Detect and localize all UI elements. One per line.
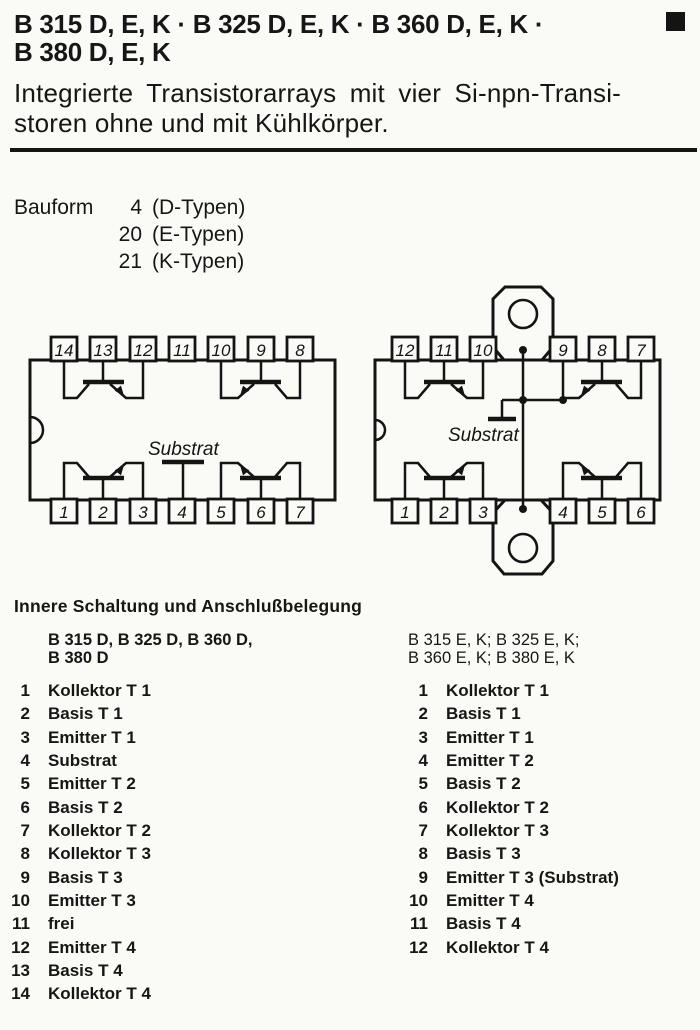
- pin-number: 11: [173, 341, 191, 360]
- pinout-left-header: B 315 D, B 325 D, B 360 D, B 380 D: [48, 632, 253, 667]
- pin-number-cell: 4: [0, 749, 30, 772]
- pin-label-cell: Basis T 3: [48, 868, 123, 887]
- transistor-symbol-t4: [405, 361, 483, 398]
- page-title-line2: B 380 D, E, K: [14, 37, 171, 68]
- bauform-row: 20(E-Typen): [100, 221, 245, 248]
- pin-number-cell: 6: [0, 796, 30, 819]
- pin-row: 12Emitter T 4: [0, 936, 151, 959]
- pin-number-cell: 5: [0, 772, 30, 795]
- pin-label-cell: Basis T 1: [48, 704, 123, 723]
- pin-number: 9: [256, 341, 266, 360]
- pin-label-cell: Basis T 4: [446, 914, 521, 933]
- transistor-symbol-t3: [563, 361, 641, 398]
- bauform-label: Bauform: [14, 196, 93, 220]
- pin-label-cell: Emitter T 3: [48, 891, 136, 910]
- pin-row: 2Basis T 1: [0, 702, 151, 725]
- subtitle-line2: storen ohne und mit Kühlkörper.: [14, 108, 389, 139]
- pin-number: 8: [295, 341, 305, 360]
- pin-row: 9Emitter T 3 (Substrat): [398, 866, 619, 889]
- pin-number: 13: [94, 341, 113, 360]
- pinout-right-header-line1: B 315 E, K; B 325 E, K;: [408, 632, 580, 650]
- pin-row: 10Emitter T 4: [398, 889, 619, 912]
- pinout-right-header-line2: B 360 E, K; B 380 E, K: [408, 650, 580, 668]
- pin-label-cell: Basis T 4: [48, 961, 123, 980]
- pin-number-cell: 4: [398, 749, 428, 772]
- pin-row: 5Emitter T 2: [0, 772, 151, 795]
- pin-row: 3Emitter T 1: [0, 726, 151, 749]
- pin-number-cell: 8: [398, 842, 428, 865]
- pin-label-cell: Emitter T 2: [48, 774, 136, 793]
- pin-number: 10: [474, 341, 493, 360]
- pin-label-cell: Emitter T 1: [446, 728, 534, 747]
- pin-row: 2Basis T 1: [398, 702, 619, 725]
- transistor-symbol-t2: [563, 463, 641, 500]
- pin-label-cell: Kollektor T 4: [48, 984, 151, 1003]
- pin-row: 11frei: [0, 912, 151, 935]
- pin-label-cell: Kollektor T 3: [446, 821, 549, 840]
- pin-label-cell: Basis T 1: [446, 704, 521, 723]
- pinout-heading: Innere Schaltung und Anschlußbelegung: [14, 596, 362, 617]
- pin-row: 1Kollektor T 1: [0, 679, 151, 702]
- transistor-symbol-t3: [221, 361, 300, 398]
- pin-label-cell: Kollektor T 4: [446, 938, 549, 957]
- pin-number-cell: 2: [398, 702, 428, 725]
- pin-number: 9: [558, 341, 568, 360]
- transistor-symbol-t1: [64, 463, 143, 500]
- dip12k-package: 12 11 10 9 8 7 1 2 3 4 5 6: [375, 287, 660, 574]
- pin-row: 6Basis T 2: [0, 796, 151, 819]
- pin-number: 5: [597, 503, 607, 522]
- pin-number: 4: [558, 503, 567, 522]
- pin-row: 14Kollektor T 4: [0, 982, 151, 1005]
- pin-number-cell: 1: [0, 679, 30, 702]
- pin-number: 3: [138, 503, 148, 522]
- pin-label-cell: frei: [48, 914, 74, 933]
- pin-number: 12: [134, 341, 153, 360]
- pin-number: 1: [400, 503, 409, 522]
- pinout-left-header-line1: B 315 D, B 325 D, B 360 D,: [48, 632, 253, 650]
- pin-row: 5Basis T 2: [398, 772, 619, 795]
- pin-number: 1: [59, 503, 68, 522]
- pin-number: 6: [636, 503, 646, 522]
- pin-row: 4Emitter T 2: [398, 749, 619, 772]
- pin-number: 14: [55, 341, 74, 360]
- transistor-symbol-t4: [64, 361, 143, 398]
- pin-label-cell: Basis T 2: [446, 774, 521, 793]
- pin-number-cell: 12: [0, 936, 30, 959]
- bauform-number: 4: [100, 194, 142, 221]
- pin-label-cell: Basis T 2: [48, 798, 123, 817]
- bauform-number: 20: [100, 221, 142, 248]
- pin-number-cell: 12: [398, 936, 428, 959]
- datasheet-page: B 315 D, E, K · B 325 D, E, K · B 360 D,…: [0, 0, 700, 1030]
- bauform-rows: 4(D-Typen) 20(E-Typen) 21(K-Typen): [100, 194, 245, 275]
- pin-number: 5: [216, 503, 226, 522]
- pin-number-cell: 7: [0, 819, 30, 842]
- pin-list-left: 1Kollektor T 1 2Basis T 1 3Emitter T 1 4…: [0, 679, 151, 1006]
- pin-number-cell: 11: [398, 912, 428, 935]
- dip14-package: 14 13 12 11 10 9 8 1 2 3 4 5 6 7: [30, 337, 335, 523]
- transistor-symbol-t1: [405, 463, 483, 500]
- pin-number: 4: [177, 503, 186, 522]
- pin-number-cell: 5: [398, 772, 428, 795]
- pin-number: 10: [212, 341, 231, 360]
- pin-label-cell: Emitter T 3 (Substrat): [446, 868, 619, 887]
- bauform-number: 21: [100, 248, 142, 275]
- bauform-row: 4(D-Typen): [100, 194, 245, 221]
- substrat-label: Substrat: [148, 439, 219, 460]
- bottom-pin-row: 1 2 3 4 5 6 7: [51, 499, 313, 523]
- pin-label-cell: Emitter T 4: [48, 938, 136, 957]
- index-notch: [30, 417, 43, 443]
- pin-row: 6Kollektor T 2: [398, 796, 619, 819]
- top-pin-row: 14 13 12 11 10 9 8: [51, 337, 313, 361]
- black-square-icon: [666, 12, 685, 31]
- horizontal-rule: [10, 148, 697, 152]
- pin-label-cell: Kollektor T 2: [48, 821, 151, 840]
- bauform-type: (D-Typen): [152, 196, 245, 219]
- pin-number: 7: [636, 341, 646, 360]
- pin-number-cell: 8: [0, 842, 30, 865]
- pin-number-cell: 10: [398, 889, 428, 912]
- pin-number-cell: 14: [0, 982, 30, 1005]
- pin-row: 10Emitter T 3: [0, 889, 151, 912]
- package-diagrams: 14 13 12 11 10 9 8 1 2 3 4 5 6 7: [0, 278, 700, 580]
- pin-number: 2: [438, 503, 449, 522]
- pin-number: 3: [478, 503, 488, 522]
- pin-row: 7Kollektor T 3: [398, 819, 619, 842]
- pin-label-cell: Kollektor T 1: [446, 681, 549, 700]
- pin-row: 11Basis T 4: [398, 912, 619, 935]
- pin-label-cell: Kollektor T 2: [446, 798, 549, 817]
- pin-number-cell: 6: [398, 796, 428, 819]
- pin-number: 6: [256, 503, 266, 522]
- substrat-label: Substrat: [448, 425, 519, 446]
- pinout-left-header-line2: B 380 D: [48, 650, 253, 668]
- pin-number-cell: 10: [0, 889, 30, 912]
- pin-number: 7: [295, 503, 305, 522]
- pin-number-cell: 9: [0, 866, 30, 889]
- pin-number: 12: [396, 341, 415, 360]
- pin-row: 3Emitter T 1: [398, 726, 619, 749]
- pin-list-right: 1Kollektor T 1 2Basis T 1 3Emitter T 1 4…: [398, 679, 619, 959]
- pin-label-cell: Emitter T 2: [446, 751, 534, 770]
- transistor-symbol-t2: [221, 463, 300, 500]
- pin-number-cell: 11: [0, 912, 30, 935]
- pin-label-cell: Basis T 3: [446, 844, 521, 863]
- pin-number-cell: 7: [398, 819, 428, 842]
- pin-row: 13Basis T 4: [0, 959, 151, 982]
- pin-number: 2: [97, 503, 108, 522]
- pinout-right-header: B 315 E, K; B 325 E, K; B 360 E, K; B 38…: [408, 632, 580, 667]
- pin-number-cell: 2: [0, 702, 30, 725]
- bauform-type: (E-Typen): [152, 223, 244, 246]
- pin-row: 7Kollektor T 2: [0, 819, 151, 842]
- pin-row: 8Basis T 3: [398, 842, 619, 865]
- bauform-row: 21(K-Typen): [100, 248, 245, 275]
- pin-label-cell: Kollektor T 1: [48, 681, 151, 700]
- pin-number-cell: 9: [398, 866, 428, 889]
- pin-number: 8: [597, 341, 607, 360]
- pin-label-cell: Kollektor T 3: [48, 844, 151, 863]
- pin-number-cell: 3: [398, 726, 428, 749]
- pin-row: 1Kollektor T 1: [398, 679, 619, 702]
- page-title-line1: B 315 D, E, K · B 325 D, E, K · B 360 D,…: [14, 9, 543, 40]
- pin-label-cell: Emitter T 1: [48, 728, 136, 747]
- pin-number: 11: [435, 341, 453, 360]
- substrat-symbol: [162, 462, 204, 500]
- pin-row: 9Basis T 3: [0, 866, 151, 889]
- pin-number-cell: 1: [398, 679, 428, 702]
- pin-number-cell: 3: [0, 726, 30, 749]
- bauform-type: (K-Typen): [152, 250, 244, 273]
- pin-row: 4Substrat: [0, 749, 151, 772]
- pin-row: 12Kollektor T 4: [398, 936, 619, 959]
- pin-number-cell: 13: [0, 959, 30, 982]
- pin-label-cell: Emitter T 4: [446, 891, 534, 910]
- subtitle-line1: Integrierte Transistorarrays mit vier Si…: [14, 78, 621, 109]
- pin-row: 8Kollektor T 3: [0, 842, 151, 865]
- pin-label-cell: Substrat: [48, 751, 117, 770]
